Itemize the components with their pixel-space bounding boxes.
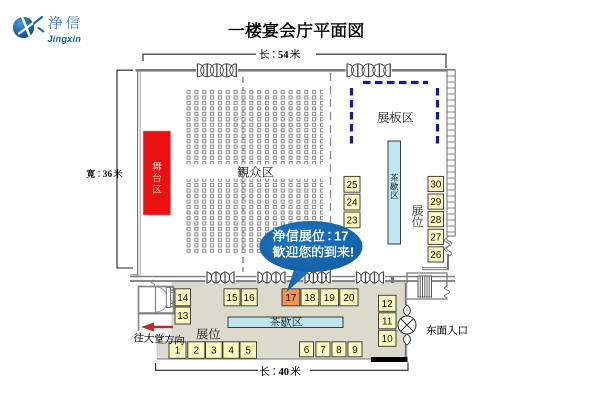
svg-text:!: ! <box>350 245 354 260</box>
svg-text:23: 23 <box>346 216 358 227</box>
svg-text:28: 28 <box>430 215 442 226</box>
svg-text:5: 5 <box>245 346 251 357</box>
svg-text:16: 16 <box>244 293 256 304</box>
svg-text:6: 6 <box>304 345 310 356</box>
svg-text:10: 10 <box>382 334 394 345</box>
svg-text:8: 8 <box>336 345 342 356</box>
svg-text:24: 24 <box>346 198 358 209</box>
svg-text:4: 4 <box>228 346 234 357</box>
svg-text:54: 54 <box>278 50 289 61</box>
svg-text:17: 17 <box>285 293 297 304</box>
svg-text:9: 9 <box>352 345 358 356</box>
svg-text:Jingxin: Jingxin <box>48 34 82 44</box>
svg-text:12: 12 <box>382 299 394 310</box>
svg-text:30: 30 <box>430 180 442 191</box>
svg-text:17: 17 <box>334 229 348 244</box>
svg-text:18: 18 <box>304 293 316 304</box>
svg-text:11: 11 <box>382 316 393 327</box>
svg-text:25: 25 <box>346 180 358 191</box>
svg-text:26: 26 <box>430 250 442 261</box>
svg-text:27: 27 <box>430 232 442 243</box>
svg-text:7: 7 <box>320 345 326 356</box>
svg-text:29: 29 <box>430 197 442 208</box>
svg-text:20: 20 <box>343 293 355 304</box>
svg-text:15: 15 <box>226 293 238 304</box>
svg-text:1: 1 <box>175 346 181 357</box>
svg-text:36: 36 <box>103 170 113 180</box>
svg-text:19: 19 <box>324 293 336 304</box>
svg-text:14: 14 <box>177 293 189 304</box>
svg-text:3: 3 <box>211 346 217 357</box>
svg-text:40: 40 <box>279 367 290 378</box>
svg-text:13: 13 <box>177 311 189 322</box>
svg-text:2: 2 <box>194 346 200 357</box>
